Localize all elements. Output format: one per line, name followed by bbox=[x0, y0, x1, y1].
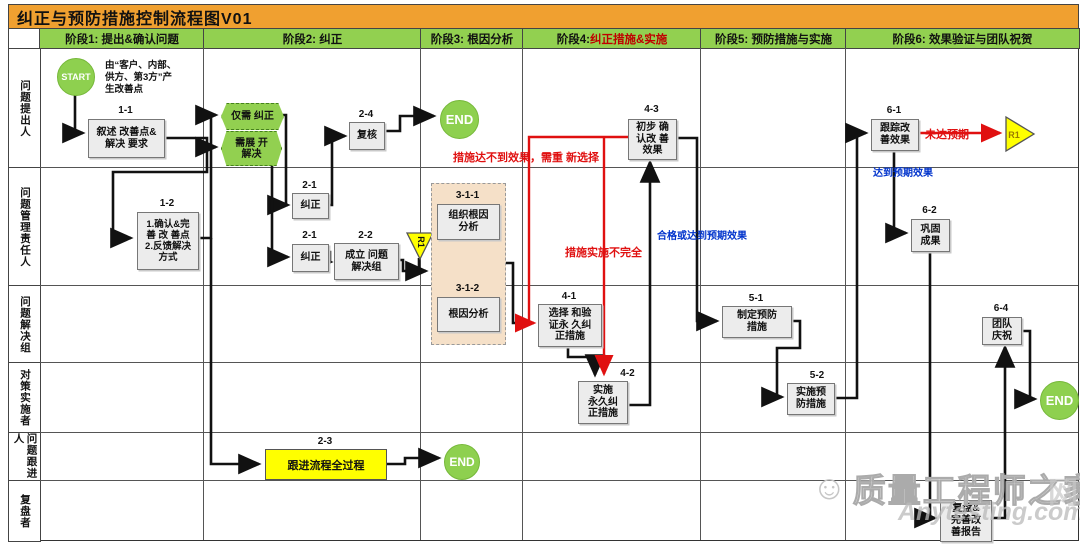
end-terminal-2: END bbox=[1040, 381, 1079, 420]
annotation-red-notmet: 未达预期 bbox=[925, 126, 969, 142]
header-corner-cell bbox=[8, 28, 41, 49]
grid-vline-5 bbox=[845, 48, 846, 540]
annotation-blue-ok: 合格或达到预期效果 bbox=[657, 227, 747, 242]
node-6-1: 跟踪改 善效果 bbox=[871, 119, 919, 151]
grid-hline-3 bbox=[40, 362, 1078, 363]
node-2-1b: 纠正 bbox=[292, 244, 329, 272]
node-4-1-num: 4-1 bbox=[538, 291, 600, 302]
node-2-1b-num: 2-1 bbox=[292, 230, 327, 241]
annotation-blue-met: 达到预期效果 bbox=[873, 164, 933, 179]
phase-header-6: 阶段6: 效果验证与团队祝贺 bbox=[845, 28, 1080, 49]
node-1-2: 1.确认&完 善 改 善点 2.反馈解决 方式 bbox=[137, 212, 199, 270]
phase-header-1: 阶段1: 提出&确认问题 bbox=[39, 28, 205, 49]
node-4-3: 初步 确 认改 善 效果 bbox=[628, 119, 677, 160]
flowchart-canvas: 纠正与预防措施控制流程图V01 阶段1: 提出&确认问题 阶段2: 纠正 阶段3… bbox=[0, 0, 1080, 544]
grid-vline-2 bbox=[420, 48, 421, 540]
hexagon-expand-solve: 需展 开 解决 bbox=[221, 131, 282, 166]
node-1-2-num: 1-2 bbox=[137, 198, 197, 209]
node-6-4: 团队 庆祝 bbox=[982, 317, 1022, 345]
lane-label-reviewer: 复盘者 bbox=[8, 480, 41, 542]
grid-hline-5 bbox=[40, 480, 1078, 481]
node-2-1a: 纠正 bbox=[292, 193, 329, 219]
node-6-3: 复盘& 完善改 善报告 bbox=[940, 500, 992, 542]
lane-label-solving-team: 问题解决组 bbox=[8, 285, 41, 364]
grid-vline-4 bbox=[700, 48, 701, 540]
annotation-red-incomplete: 措施实施不完全 bbox=[565, 244, 642, 260]
node-4-1: 选择 和验 证永 久纠 正措施 bbox=[538, 304, 602, 347]
node-3-1-1-num: 3-1-1 bbox=[437, 190, 498, 201]
phase-header-4: 阶段4: 纠正措施&实施 bbox=[522, 28, 702, 49]
grid-hline-2 bbox=[40, 285, 1078, 286]
annotation-red-reselect: 措施达不到效果，需重 新选择 bbox=[453, 149, 599, 165]
node-3-1-2: 根因分析 bbox=[437, 297, 500, 332]
phase-header-2: 阶段2: 纠正 bbox=[203, 28, 422, 49]
node-4-2-num: 4-2 bbox=[600, 368, 655, 379]
node-2-3: 跟进流程全过程 bbox=[265, 449, 387, 480]
end-terminal-1: END bbox=[440, 100, 479, 139]
node-3-1-2-num: 3-1-2 bbox=[437, 283, 498, 294]
node-2-4: 复核 bbox=[349, 122, 385, 150]
node-2-4-num: 2-4 bbox=[349, 109, 383, 120]
lane-label-problem-proposer: 问题提出人 bbox=[8, 48, 41, 169]
node-2-2: 成立 问题 解决组 bbox=[334, 243, 399, 280]
title-bar: 纠正与预防措施控制流程图V01 bbox=[8, 4, 1079, 29]
lane-label-problem-manager: 问题管理责任人 bbox=[8, 167, 41, 287]
lane-label-follower: 问题跟进人 bbox=[8, 432, 41, 482]
node-1-1-num: 1-1 bbox=[88, 105, 163, 116]
node-5-2: 实施预 防措施 bbox=[787, 383, 835, 415]
node-5-1-num: 5-1 bbox=[722, 293, 790, 304]
node-3-1-1: 组织根因 分析 bbox=[437, 204, 500, 240]
node-6-2: 巩固 成果 bbox=[911, 219, 950, 252]
node-6-1-num: 6-1 bbox=[871, 105, 917, 116]
page-title: 纠正与预防措施控制流程图V01 bbox=[9, 5, 252, 29]
node-2-1a-num: 2-1 bbox=[292, 180, 327, 191]
node-4-3-num: 4-3 bbox=[628, 104, 675, 115]
node-5-1: 制定预防 措施 bbox=[722, 306, 792, 338]
lane-label-implementer: 对策实施者 bbox=[8, 362, 41, 434]
grid-vline-1 bbox=[203, 48, 204, 540]
node-6-2-num: 6-2 bbox=[911, 205, 948, 216]
grid-hline-4 bbox=[40, 432, 1078, 433]
node-5-2-num: 5-2 bbox=[787, 370, 847, 381]
hexagon-only-correct: 仅需 纠正 bbox=[221, 103, 284, 130]
end-terminal-3: END bbox=[444, 444, 480, 480]
node-6-4-num: 6-4 bbox=[982, 303, 1020, 314]
grid-vline-3 bbox=[522, 48, 523, 540]
phase-header-3: 阶段3: 根因分析 bbox=[420, 28, 524, 49]
phase-header-5: 阶段5: 预防措施与实施 bbox=[700, 28, 847, 49]
node-2-2-num: 2-2 bbox=[334, 230, 397, 241]
node-1-1: 叙述 改善点& 解决 要求 bbox=[88, 119, 165, 158]
node-4-2: 实施 永久纠 正措施 bbox=[578, 381, 628, 424]
start-terminal: START bbox=[57, 58, 95, 96]
start-note: 由“客户、内部、 供方、第3方”产 生改善点 bbox=[105, 60, 215, 96]
node-2-3-num: 2-3 bbox=[265, 436, 385, 447]
